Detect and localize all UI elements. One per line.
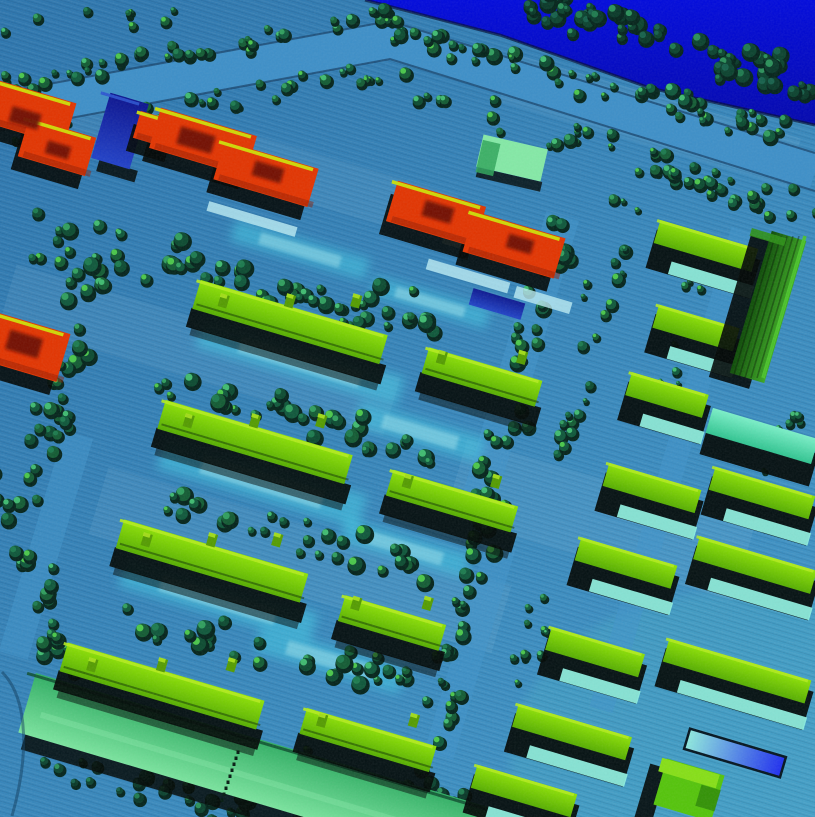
- lidar-elevation-map: [0, 0, 815, 817]
- screenshot-root: { "view": { "type": "lidar-dsm-elevation…: [0, 0, 815, 817]
- texture-noise-overlay: [0, 0, 815, 817]
- dsm-scene: [0, 0, 815, 817]
